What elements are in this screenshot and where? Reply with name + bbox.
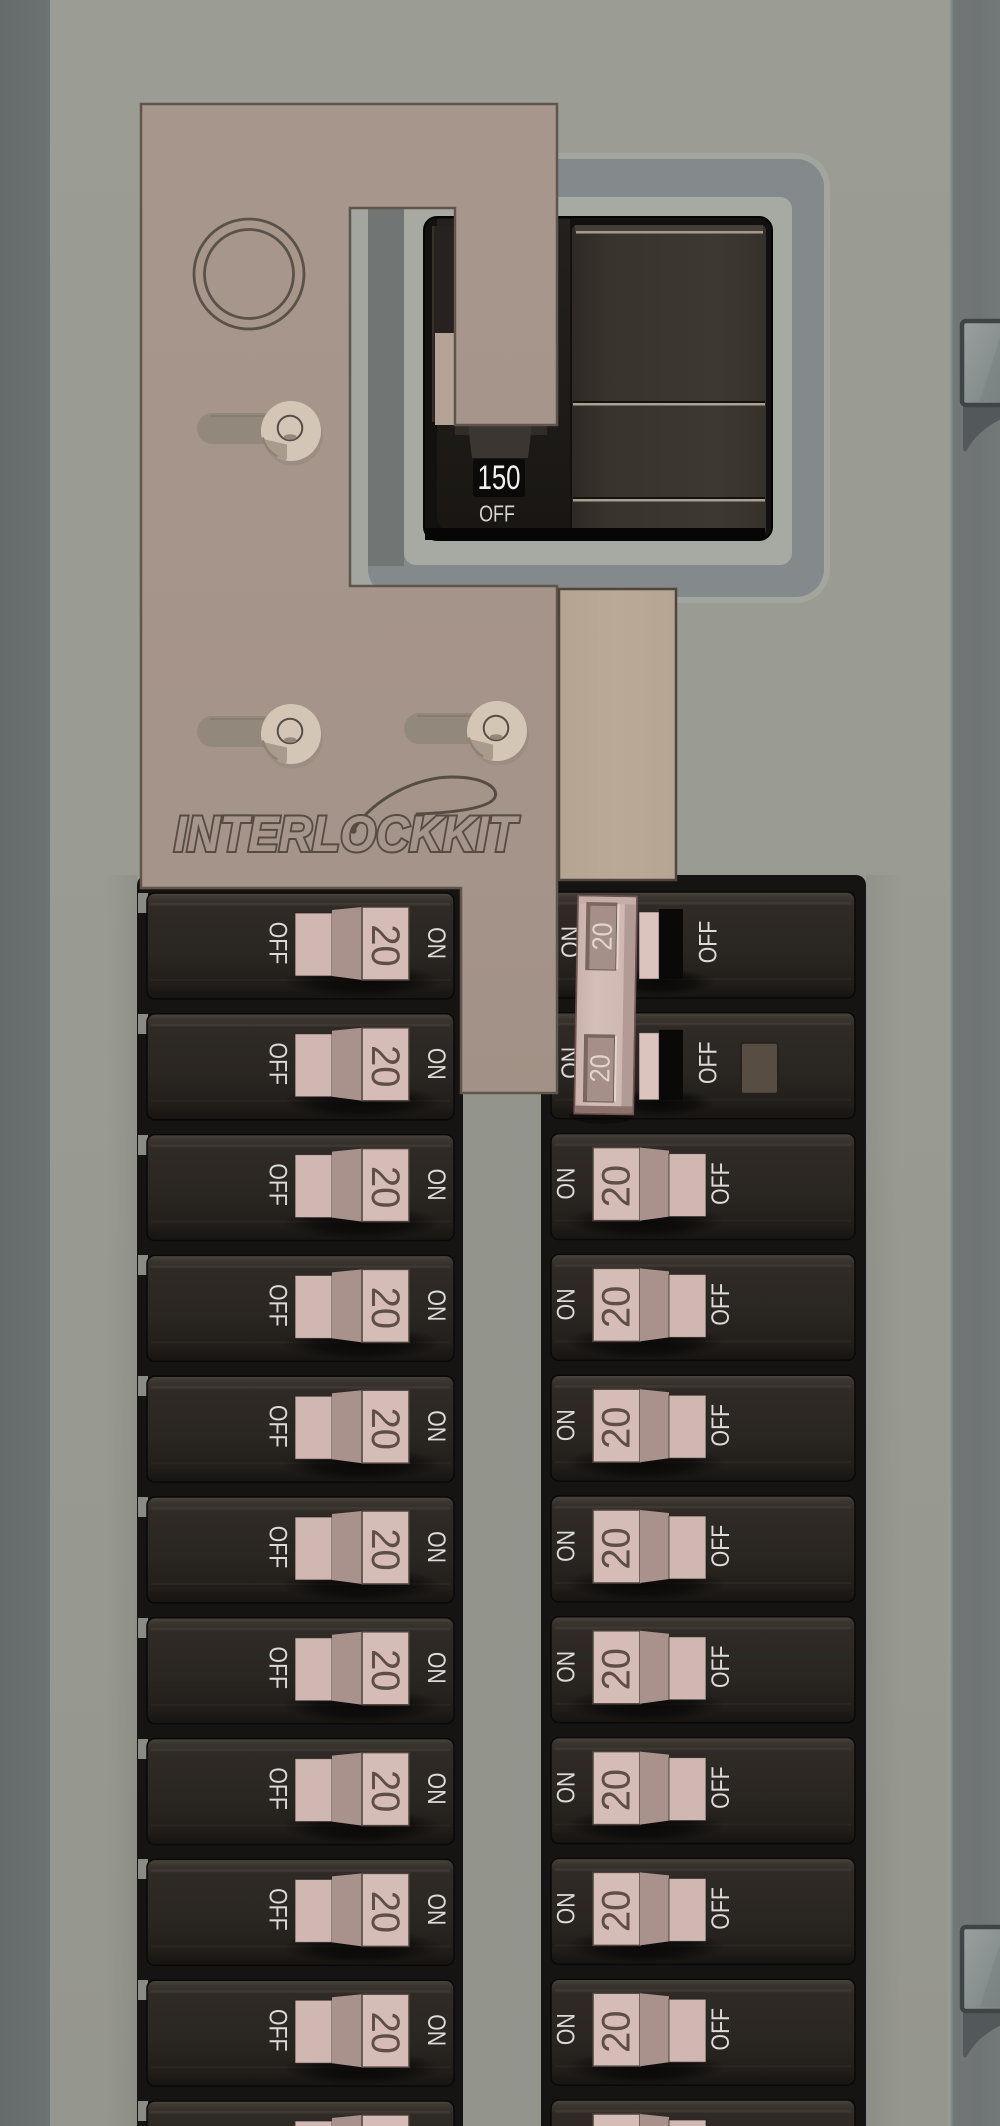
svg-text:OFF: OFF: [264, 922, 292, 964]
svg-text:20: 20: [584, 1054, 616, 1083]
svg-text:20: 20: [594, 1890, 638, 1932]
svg-text:20: 20: [594, 2011, 638, 2053]
svg-text:20: 20: [363, 1045, 407, 1087]
svg-text:20: 20: [363, 1408, 407, 1450]
svg-text:OFF: OFF: [706, 1766, 734, 1808]
svg-text:INTERLOCKKIT: INTERLOCKKIT: [174, 807, 520, 862]
svg-text:OFF: OFF: [264, 1163, 292, 1205]
svg-text:OFF: OFF: [706, 1887, 734, 1929]
svg-text:OFF: OFF: [694, 921, 722, 963]
svg-text:ON: ON: [422, 1289, 450, 1321]
svg-text:ON: ON: [422, 1048, 450, 1080]
svg-text:OFF: OFF: [706, 1404, 734, 1446]
svg-text:20: 20: [363, 1166, 407, 1208]
svg-text:OFF: OFF: [264, 1405, 292, 1447]
svg-text:ON: ON: [422, 1169, 450, 1201]
svg-text:OFF: OFF: [694, 1042, 722, 1084]
svg-text:20: 20: [594, 1527, 638, 1569]
svg-text:ON: ON: [422, 1531, 450, 1563]
svg-text:20: 20: [363, 2012, 407, 2054]
svg-text:20: 20: [586, 922, 618, 951]
svg-text:ON: ON: [422, 1773, 450, 1805]
svg-text:OFF: OFF: [264, 1526, 292, 1568]
svg-text:OFF: OFF: [264, 1043, 292, 1085]
svg-text:20: 20: [363, 1891, 407, 1933]
svg-text:20: 20: [594, 1286, 638, 1328]
svg-text:ON: ON: [422, 927, 450, 959]
svg-text:ON: ON: [552, 1409, 580, 1441]
svg-text:OFF: OFF: [706, 1283, 734, 1325]
svg-text:OFF: OFF: [264, 1647, 292, 1689]
svg-text:ON: ON: [552, 1168, 580, 1200]
svg-text:ON: ON: [552, 2013, 580, 2045]
svg-text:20: 20: [363, 1287, 407, 1329]
svg-text:OFF: OFF: [479, 502, 515, 528]
svg-text:20: 20: [363, 924, 407, 966]
svg-text:20: 20: [363, 1528, 407, 1570]
svg-text:150: 150: [477, 460, 520, 497]
svg-text:20: 20: [363, 1770, 407, 1812]
svg-text:ON: ON: [422, 2014, 450, 2046]
svg-text:OFF: OFF: [264, 1284, 292, 1326]
svg-text:ON: ON: [552, 1530, 580, 1562]
svg-text:OFF: OFF: [706, 2008, 734, 2050]
svg-text:ON: ON: [552, 1772, 580, 1804]
svg-text:20: 20: [363, 1649, 407, 1691]
svg-text:ON: ON: [552, 1288, 580, 1320]
svg-text:OFF: OFF: [706, 1646, 734, 1688]
svg-text:20: 20: [594, 1407, 638, 1449]
svg-text:OFF: OFF: [264, 1767, 292, 1809]
svg-text:ON: ON: [552, 1651, 580, 1683]
svg-text:ON: ON: [422, 1410, 450, 1442]
svg-text:ON: ON: [422, 1893, 450, 1925]
svg-text:20: 20: [594, 1648, 638, 1690]
svg-text:OFF: OFF: [706, 1162, 734, 1204]
svg-text:OFF: OFF: [264, 2009, 292, 2051]
svg-text:20: 20: [594, 1165, 638, 1207]
svg-text:ON: ON: [552, 1892, 580, 1924]
svg-text:20: 20: [594, 1769, 638, 1811]
svg-text:OFF: OFF: [264, 1888, 292, 1930]
svg-text:OFF: OFF: [706, 1525, 734, 1567]
svg-text:ON: ON: [422, 1652, 450, 1684]
